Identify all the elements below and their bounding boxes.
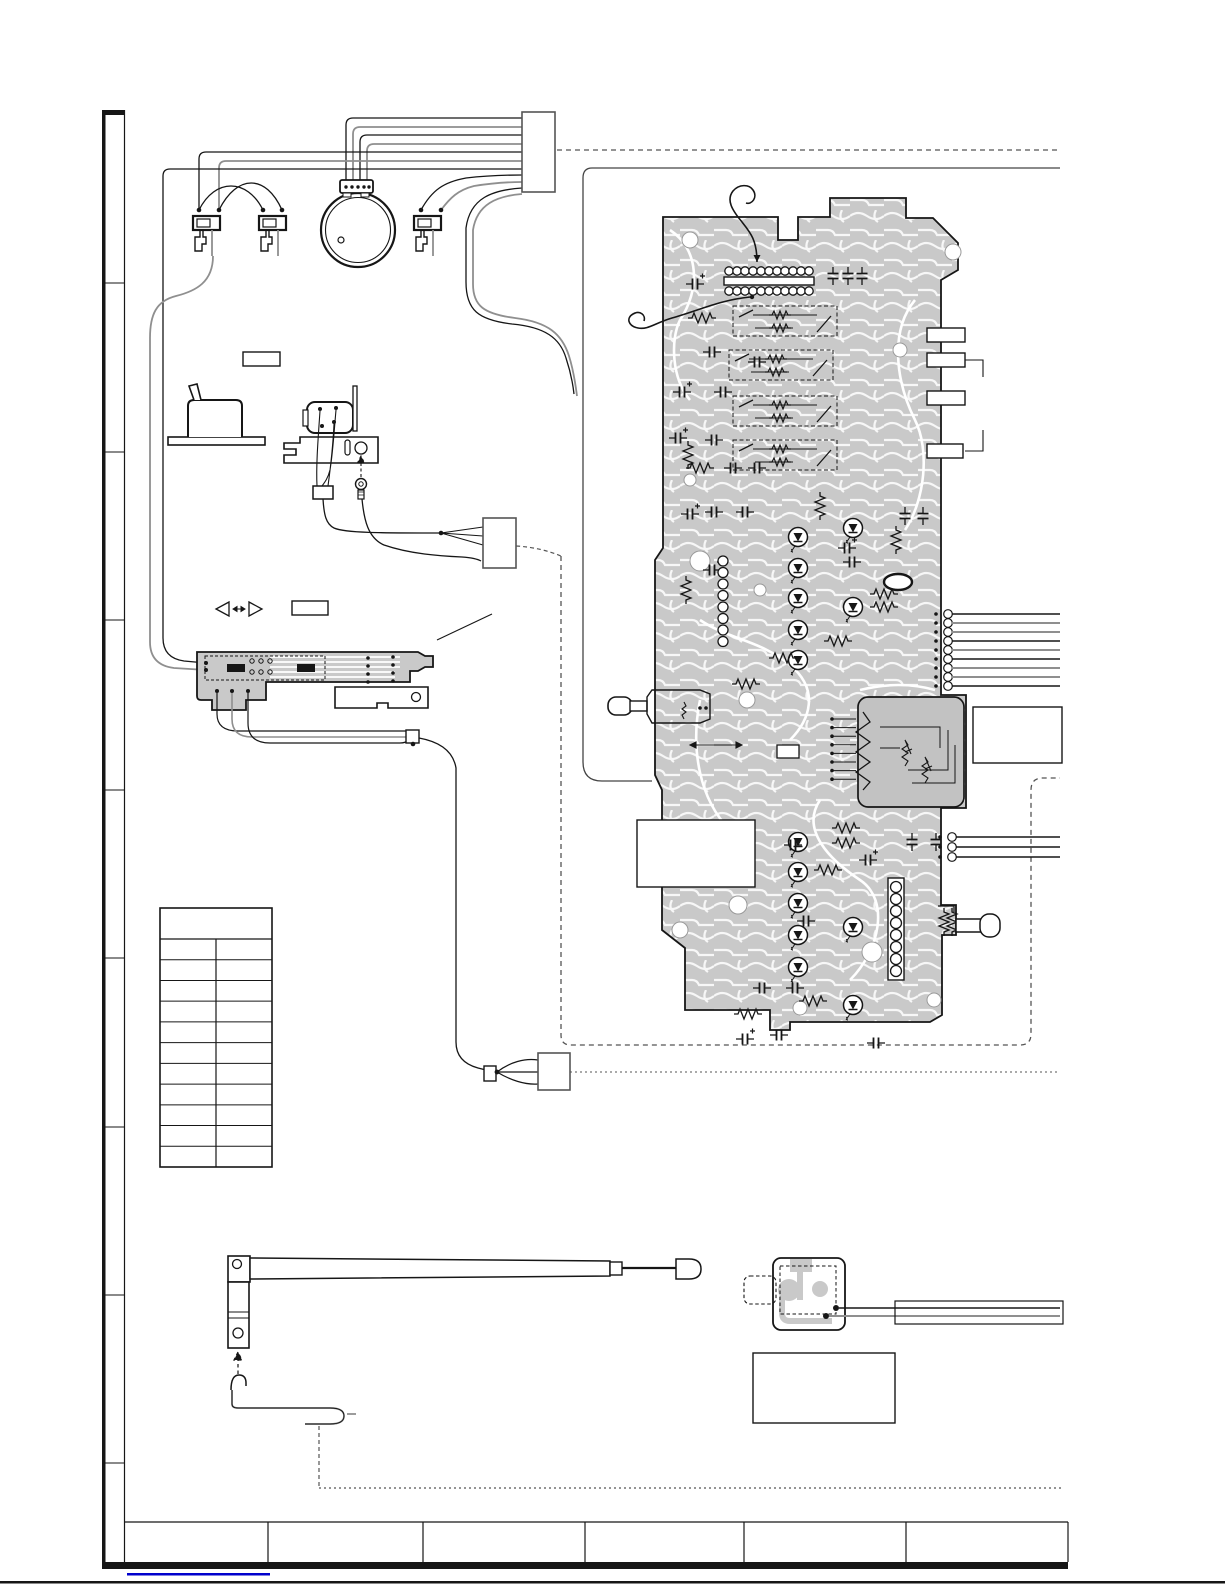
pin-circle [733,287,741,295]
pin-strip-bar [724,277,814,285]
switch3-wire [421,175,522,210]
coil-icon [948,833,957,842]
pin-circle [718,637,728,647]
empty-label-box [753,1353,895,1423]
solder-dot [934,666,938,670]
solder-dot [934,639,938,643]
solder-dot [280,208,285,213]
solder-dot [938,855,942,859]
switch-jumper-arcs [199,183,282,210]
pin-circle [805,287,813,295]
empty-label-box [927,353,965,367]
pin-circle [718,625,728,635]
solder-dots [197,208,444,213]
mount-hole [672,922,688,938]
coil-icon [944,610,953,619]
pin-circle [891,918,902,929]
descending-wire [466,188,574,394]
pin-circle [773,267,781,275]
pin-circle [891,942,902,953]
solder-dot [934,684,938,688]
solder-dot [197,208,202,213]
coil-icon [944,628,953,637]
scale-pcb-strip [197,614,492,710]
slide-direction-arrows [216,602,262,616]
harness-long-wire [150,256,213,670]
switch-component-1 [193,216,220,256]
telescopic-antenna [228,1256,701,1424]
solder-dot [934,648,938,652]
solder-dot [419,208,424,213]
wiring-diagram-canvas [0,0,1225,1585]
top-harness-section [150,118,577,670]
pin-circle [733,267,741,275]
mount-hole [690,551,710,571]
pin-circle [797,267,805,275]
pin-circle [891,882,902,893]
connector-mid [483,518,516,568]
pin-circle [718,579,728,589]
label-bracket-line [965,360,983,451]
pin-circle [741,287,749,295]
solder-dot [934,630,938,634]
empty-label-box [292,601,328,615]
link-underline [127,1573,270,1576]
harness-wire [360,135,522,181]
capacitor-icon [770,1030,788,1041]
solder-dot [934,612,938,616]
empty-label-box [973,707,1062,763]
jack-assembly [284,386,378,499]
pin-circle [891,954,902,965]
page-edge-bar [102,110,106,1562]
pin-circle [741,267,749,275]
solder-dot [217,208,222,213]
mount-hole [927,993,941,1007]
pin-circle [718,602,728,612]
switch-component-3 [414,216,441,256]
pin-circle [725,287,733,295]
solder-dot [938,835,942,839]
parts-reference-table [160,908,272,1167]
connector-blocks [483,112,570,1090]
pin-circle [757,267,765,275]
coil-icon [944,637,953,646]
pin-circle [781,287,789,295]
electrolytic-icon [736,1029,755,1045]
pin-circle [718,568,728,578]
mount-hole [945,244,961,260]
empty-label-box [927,444,963,458]
mount-hole [862,942,882,962]
antenna-pcb [744,1258,1063,1330]
pin-circle [789,267,797,275]
pin-circle [718,614,728,624]
pin-circle [718,591,728,601]
page-edge-cap [102,110,125,115]
coil-icon [948,853,957,862]
solder-dot [261,208,266,213]
mount-hole [739,692,755,708]
top-pin-connector [724,267,814,295]
pin-circle [725,267,733,275]
pin-circle [891,966,902,977]
motor-component [321,180,395,267]
descending-wire [473,194,577,396]
pin-circle [718,556,728,566]
pin-circle [781,267,789,275]
mount-hole [893,343,907,357]
jack-harness-wires [323,499,483,561]
coil-icon [944,619,953,628]
mount-hole [729,896,747,914]
mount-hole [793,1001,807,1015]
pin-circle [765,267,773,275]
mount-hole [682,232,698,248]
jumper-pad [777,745,799,758]
coil-icon [944,646,953,655]
solder-dot [934,675,938,679]
pin-circle [797,287,805,295]
battery-terminal-component [168,384,265,445]
pin-circle [749,267,757,275]
coil-icon [944,682,953,691]
page-bottom-rule [0,1581,1225,1584]
pin-circle [773,287,781,295]
solder-dot [934,621,938,625]
capacitor-icon [867,1038,885,1049]
solder-dot [439,208,444,213]
switch-component-2 [259,216,286,256]
pin-circle [805,267,813,275]
connector-lower [538,1053,570,1090]
empty-label-box [927,328,965,342]
bottom-section [228,1256,1063,1424]
solder-dot [934,657,938,661]
mount-hole [684,474,696,486]
empty-label-box [243,352,280,366]
coil-icon [944,673,953,682]
mount-hole [754,584,766,596]
main-pcb [655,198,966,1030]
pin-circle [789,287,797,295]
coil-icon [944,655,953,664]
empty-label-box [637,820,755,887]
dashed-connector-a-leader [516,546,561,556]
solder-dot [938,845,942,849]
pcb-trace-texture [655,198,966,1030]
pin-circle [891,930,902,941]
crystal-oval [884,574,912,590]
pin-circle [765,287,773,295]
coil-icon [944,664,953,673]
footer-bottom-bar [102,1562,1068,1569]
pin-circle [757,287,765,295]
pin-circle [891,894,902,905]
diagram-page [0,0,1225,1585]
pin-circle [891,906,902,917]
empty-label-box [927,391,965,405]
pin-circle [749,287,757,295]
connector-top [522,112,555,192]
coil-icon [948,843,957,852]
